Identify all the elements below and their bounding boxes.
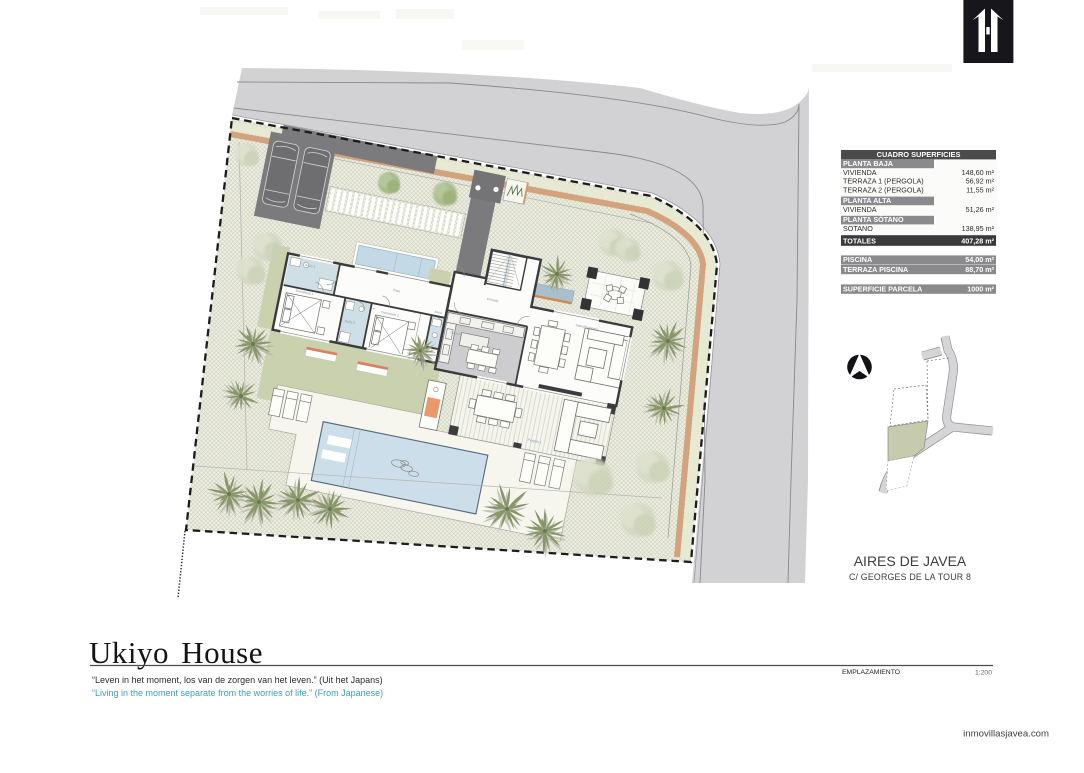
svg-text:56,92 m²: 56,92 m²	[966, 177, 995, 186]
svg-text:C/ GEORGES DE LA TOUR 8: C/ GEORGES DE LA TOUR 8	[849, 572, 971, 582]
svg-text:138,95 m²: 138,95 m²	[962, 224, 995, 233]
svg-text:Ukiyo House: Ukiyo House	[89, 635, 263, 670]
svg-text:TOTALES: TOTALES	[843, 237, 876, 246]
svg-text:AIRES DE JAVEA: AIRES DE JAVEA	[854, 553, 967, 569]
svg-text:SOTANO: SOTANO	[843, 224, 873, 233]
svg-text:“Leven in het moment, los van: “Leven in het moment, los van de zorgen …	[92, 675, 383, 685]
svg-text:“Living in the moment separate: “Living in the moment separate from the …	[92, 688, 383, 698]
svg-text:407,28 m²: 407,28 m²	[961, 237, 994, 246]
svg-text:51,26 m²: 51,26 m²	[966, 205, 995, 214]
svg-text:1:200: 1:200	[975, 670, 992, 677]
svg-text:TERRAZA PISCINA: TERRAZA PISCINA	[843, 265, 908, 274]
svg-text:inmovillasjavea.com: inmovillasjavea.com	[963, 729, 1049, 740]
svg-text:VIVIENDA: VIVIENDA	[843, 205, 877, 214]
svg-text:PLANTA SÓTANO: PLANTA SÓTANO	[843, 215, 904, 224]
svg-text:88,70 m²: 88,70 m²	[965, 265, 994, 274]
svg-text:54,00 m²: 54,00 m²	[965, 255, 994, 264]
svg-text:148,60 m²: 148,60 m²	[962, 168, 995, 177]
svg-text:PISCINA: PISCINA	[843, 255, 872, 264]
svg-text:VIVIENDA: VIVIENDA	[843, 168, 877, 177]
svg-text:PLANTA BAJA: PLANTA BAJA	[843, 159, 893, 168]
svg-text:EMPLAZAMIENTO: EMPLAZAMIENTO	[842, 669, 900, 676]
svg-text:SUPERFICIE PARCELA: SUPERFICIE PARCELA	[843, 285, 922, 294]
svg-text:1000 m²: 1000 m²	[967, 285, 994, 294]
svg-text:TERRAZA 1 (PERGOLA): TERRAZA 1 (PERGOLA)	[843, 177, 924, 186]
svg-text:TERRAZA 2 (PERGOLA): TERRAZA 2 (PERGOLA)	[843, 185, 924, 194]
svg-text:PLANTA ALTA: PLANTA ALTA	[843, 196, 891, 205]
svg-text:11,55 m²: 11,55 m²	[966, 185, 994, 194]
svg-text:CUADRO SUPERFICIES: CUADRO SUPERFICIES	[877, 150, 961, 159]
